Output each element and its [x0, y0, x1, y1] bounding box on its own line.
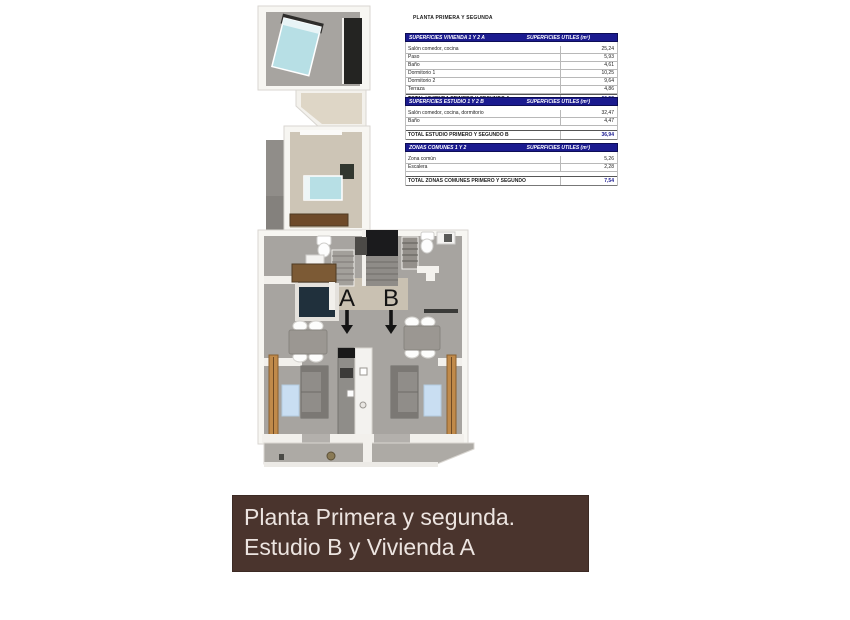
table-row: Dormitorio 2 9,64: [406, 78, 617, 86]
kitchen-strip: [338, 348, 372, 436]
plant-icon: [327, 452, 335, 460]
header-left: SUPERFICIES ESTUDIO 1 Y 2 B: [409, 99, 484, 105]
table-estudio: SUPERFICIES ESTUDIO 1 Y 2 B SUPERFICIES …: [405, 97, 618, 140]
table-total-row: TOTAL ESTUDIO PRIMERO Y SEGUNDO B 36,94: [406, 130, 617, 140]
main-floor: A B: [258, 230, 468, 444]
header-right: SUPERFICIES UTILES (m²): [527, 99, 590, 105]
table-a: [289, 330, 327, 354]
wardrobe-wood: [290, 214, 348, 226]
unit-a-letter: A: [339, 285, 355, 312]
terrace-room: [258, 6, 370, 90]
dark-panel: [344, 18, 362, 84]
table-vivienda: SUPERFICIES VIVIENDA 1 Y 2 A SUPERFICIES…: [405, 33, 618, 104]
caption-line-1: Planta Primera y segunda.: [244, 502, 588, 532]
table-row: Baño 4,61: [406, 62, 617, 70]
table-zonas-header: ZONAS COMUNES 1 Y 2 SUPERFICIES UTILES (…: [405, 143, 618, 152]
page: A B PLANTA PRIMERA: [0, 0, 850, 620]
table-row: Salón comedor, cocina 25,24: [406, 46, 617, 54]
header-left: ZONAS COMUNES 1 Y 2: [409, 145, 466, 151]
table-b: [404, 326, 440, 350]
rug-a: [282, 385, 299, 416]
table-row: Terraza 4,86: [406, 86, 617, 94]
header-left: SUPERFICIES VIVIENDA 1 Y 2 A: [409, 35, 485, 41]
table-estudio-header: SUPERFICIES ESTUDIO 1 Y 2 B SUPERFICIES …: [405, 97, 618, 106]
header-right: SUPERFICIES UTILES (m²): [527, 35, 590, 41]
unit-b-letter: B: [383, 285, 399, 312]
table-row: Baño 4,47: [406, 118, 617, 126]
caption-line-2: Estudio B y Vivienda A: [244, 532, 588, 562]
table-row: Escalera 2,28: [406, 164, 617, 172]
rug-b: [424, 385, 441, 416]
stair-landing-dark: [366, 230, 398, 256]
table-row: Salón comedor, cocina, dormitorio 32,47: [406, 110, 617, 118]
bench-wood: [292, 264, 336, 282]
table-row: Paso 5,93: [406, 54, 617, 62]
table-total-row: TOTAL ZONAS COMUNES PRIMERO Y SEGUNDO 7,…: [406, 176, 617, 186]
upper-landing: [296, 90, 366, 128]
page-title: PLANTA PRIMERA Y SEGUNDA: [413, 15, 493, 21]
header-right: SUPERFICIES UTILES (m²): [527, 145, 590, 151]
caption-banner: Planta Primera y segunda. Estudio B y Vi…: [232, 495, 589, 572]
dining-b: [404, 317, 440, 358]
table-zonas: ZONAS COMUNES 1 Y 2 SUPERFICIES UTILES (…: [405, 143, 618, 186]
table-vivienda-header: SUPERFICIES VIVIENDA 1 Y 2 A SUPERFICIES…: [405, 33, 618, 42]
table-row: Dormitorio 1 10,25: [406, 70, 617, 78]
balcony: [262, 434, 474, 467]
table-row: Zona común 5,26: [406, 156, 617, 164]
sink-a-icon: [306, 255, 324, 264]
